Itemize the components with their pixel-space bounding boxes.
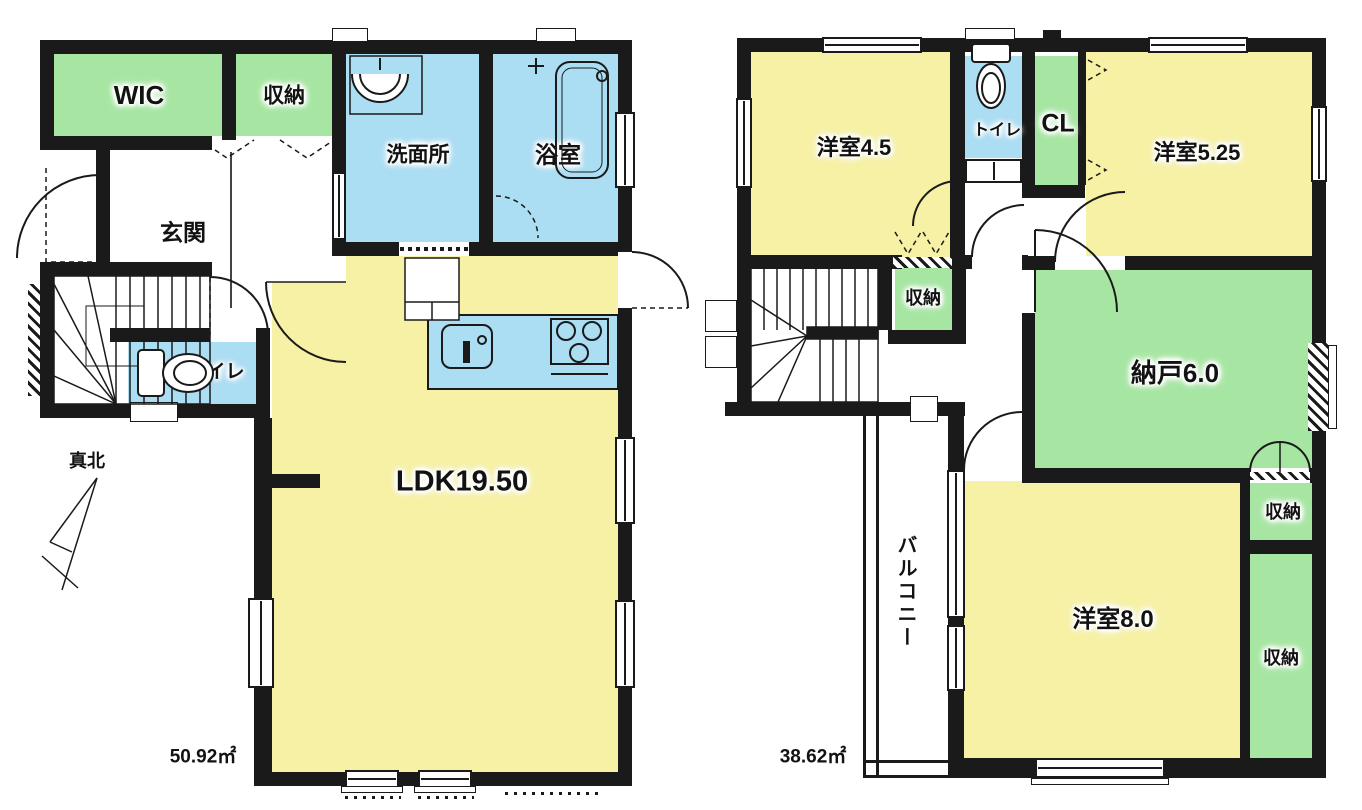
window-sill xyxy=(1031,778,1169,785)
wall xyxy=(737,255,902,269)
door-opening xyxy=(618,252,632,308)
window xyxy=(615,112,635,188)
window xyxy=(615,437,635,524)
toilet-window xyxy=(130,402,178,422)
door-opening xyxy=(399,242,469,256)
balcony-door xyxy=(947,625,965,691)
north-arrow-icon xyxy=(42,478,97,590)
door-sill xyxy=(1250,472,1310,480)
wall xyxy=(332,242,632,256)
vent-box xyxy=(536,28,576,42)
vent-dots xyxy=(505,792,600,795)
room-bathroom-label: 浴室 xyxy=(535,144,581,167)
room-storage-room-label: 納戸6.0 xyxy=(1131,360,1219,386)
window-sill xyxy=(341,786,403,793)
window xyxy=(615,600,635,688)
balcony-label: バルコニー xyxy=(895,535,915,650)
room-toilet-2f xyxy=(965,56,1022,158)
vent-box xyxy=(705,300,737,332)
window-sill xyxy=(414,786,476,793)
room-west-5-25-label: 洋室5.25 xyxy=(1154,142,1241,164)
room-toilet-2f-label: トイレ xyxy=(973,123,1021,139)
door-opening xyxy=(972,255,1022,269)
wall xyxy=(1022,185,1085,198)
door-opening xyxy=(1022,270,1035,313)
vent-box xyxy=(332,28,368,42)
balcony-rail xyxy=(876,416,879,778)
floor1-area-label: 50.92㎡ xyxy=(170,748,237,767)
door-sill xyxy=(893,257,952,268)
wall xyxy=(1022,42,1035,185)
room-storage-1f-label: 収納 xyxy=(263,86,305,107)
entrance-step-line xyxy=(230,152,232,308)
wall xyxy=(40,40,54,150)
kitchen-counter xyxy=(427,314,619,390)
wall xyxy=(222,40,236,140)
wall xyxy=(40,262,212,276)
wall xyxy=(950,38,965,255)
room-ldk-west xyxy=(272,282,346,772)
room-wic-label: WIC xyxy=(114,82,165,108)
window xyxy=(1035,758,1165,778)
wall xyxy=(1240,554,1250,758)
wall xyxy=(110,328,210,342)
window xyxy=(1148,37,1248,53)
room-entrance-label: 玄関 xyxy=(160,222,206,245)
room-cl-label: CL xyxy=(1041,112,1074,137)
balcony-rail xyxy=(863,760,948,763)
wall xyxy=(40,136,212,150)
wall xyxy=(888,330,966,344)
exterior-hatch xyxy=(28,284,40,396)
balcony-door xyxy=(947,470,965,618)
vent-box xyxy=(965,28,1015,40)
chimney-nub xyxy=(1043,30,1061,40)
balcony-rail xyxy=(863,775,948,778)
wall xyxy=(96,150,110,276)
room-west-8-label: 洋室8.0 xyxy=(1072,608,1153,632)
wall xyxy=(878,268,892,330)
vent-dots xyxy=(418,796,474,799)
room-ldk-label: LDK19.50 xyxy=(396,468,528,497)
wall xyxy=(1240,540,1326,554)
hatched-window xyxy=(1308,343,1328,431)
wall xyxy=(1078,42,1086,185)
wall xyxy=(254,474,320,488)
room-washroom-label: 洗面所 xyxy=(387,145,450,166)
window xyxy=(1311,106,1327,182)
wall xyxy=(737,268,751,416)
window-sash xyxy=(1328,345,1337,429)
balcony-step xyxy=(910,396,938,422)
door-opening xyxy=(1055,256,1125,270)
sliding-door xyxy=(965,159,1022,183)
room-storage-stairs-label: 収納 xyxy=(905,289,941,307)
wall xyxy=(256,328,270,418)
floor-plan-canvas: WIC 収納 洗面所 浴室 玄関 トイレ LDK19.50 真北 50.92㎡ xyxy=(0,0,1362,810)
room-toilet-1f-label: トイレ xyxy=(187,363,244,382)
room-storage-upper-label: 収納 xyxy=(1265,503,1301,521)
floor2-area-label: 38.62㎡ xyxy=(780,748,847,767)
vent-dots xyxy=(345,796,401,799)
room-west-4-5-label: 洋室4.5 xyxy=(817,137,892,159)
balcony-rail xyxy=(863,416,866,778)
north-label: 真北 xyxy=(69,452,105,470)
window xyxy=(248,598,274,688)
wall xyxy=(40,262,54,418)
staircase-2f xyxy=(751,268,878,402)
wall xyxy=(479,40,493,242)
vent-box xyxy=(705,336,737,368)
room-storage-lower-label: 収納 xyxy=(1263,649,1299,667)
window xyxy=(736,98,752,188)
window xyxy=(822,37,922,53)
sliding-door xyxy=(332,172,346,240)
